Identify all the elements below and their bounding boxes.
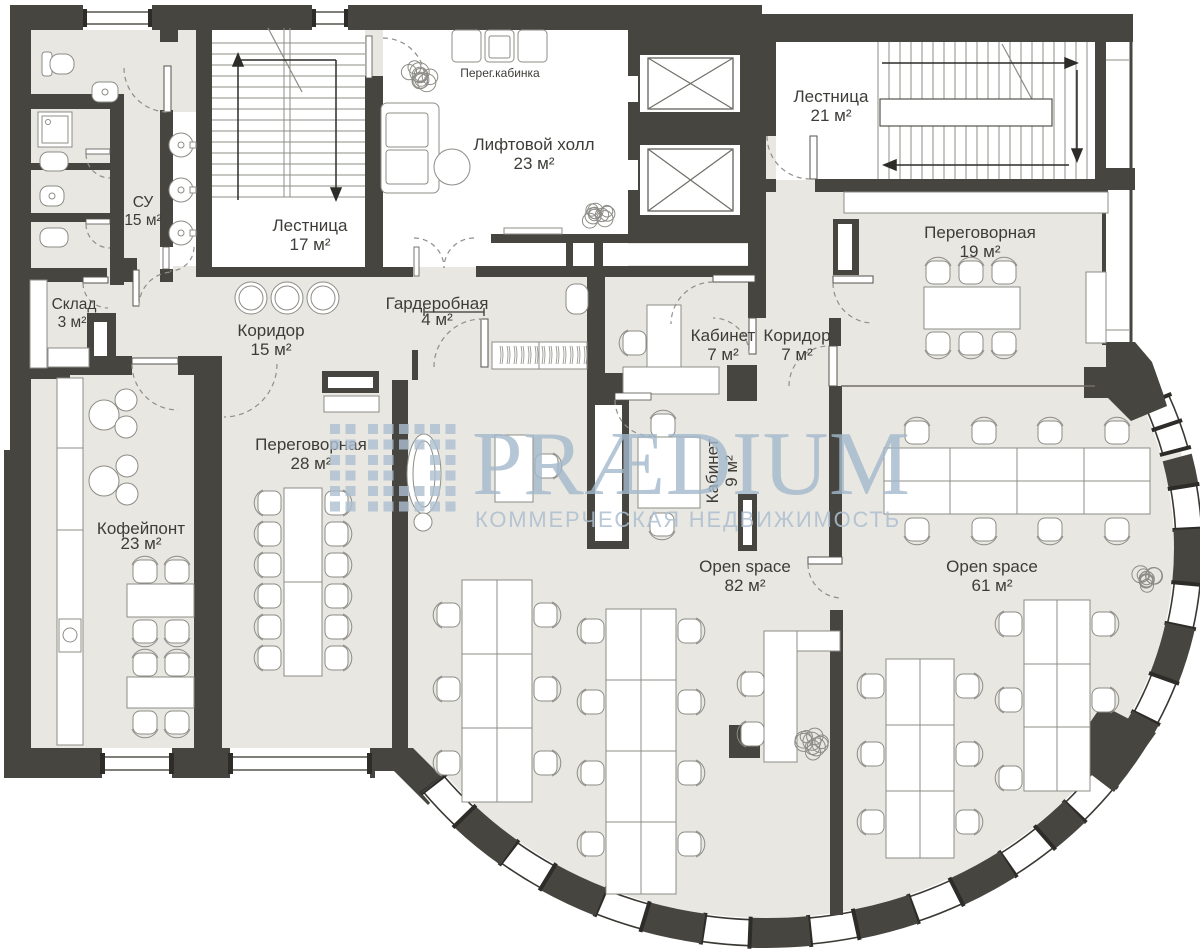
svg-text:23 м²: 23 м²: [121, 534, 162, 553]
svg-text:21 м²: 21 м²: [811, 106, 852, 125]
svg-text:Open space: Open space: [946, 557, 1038, 576]
svg-text:Коридор: Коридор: [237, 321, 304, 340]
svg-text:7 м²: 7 м²: [707, 345, 739, 364]
svg-text:7 м²: 7 м²: [781, 345, 813, 364]
svg-text:СУ: СУ: [133, 194, 154, 211]
svg-text:19 м²: 19 м²: [960, 242, 1001, 261]
svg-text:4 м²: 4 м²: [421, 310, 453, 329]
svg-text:82 м²: 82 м²: [725, 576, 766, 595]
svg-text:28 м²: 28 м²: [291, 454, 332, 473]
svg-text:КОММЕРЧЕСКАЯ НЕДВИЖИМОСТЬ: КОММЕРЧЕСКАЯ НЕДВИЖИМОСТЬ: [475, 507, 901, 532]
svg-text:Open space: Open space: [699, 557, 791, 576]
svg-text:Коридор: Коридор: [763, 326, 830, 345]
svg-text:Лестница: Лестница: [273, 216, 349, 235]
svg-text:Лестница: Лестница: [794, 87, 870, 106]
svg-text:3 м²: 3 м²: [58, 314, 87, 331]
svg-text:Склад: Склад: [52, 296, 97, 313]
svg-text:61 м²: 61 м²: [972, 576, 1013, 595]
svg-text:17 м²: 17 м²: [290, 235, 331, 254]
svg-text:Лифтовой холл: Лифтовой холл: [473, 135, 594, 154]
svg-text:Перег.кабинка: Перег.кабинка: [460, 66, 540, 80]
svg-text:15 м²: 15 м²: [124, 212, 161, 229]
svg-text:Кабинет: Кабинет: [691, 326, 756, 345]
svg-text:Переговорная: Переговорная: [924, 223, 1036, 242]
svg-text:23 м²: 23 м²: [514, 154, 555, 173]
svg-text:PRÆDIUM: PRÆDIUM: [472, 413, 910, 514]
svg-text:15 м²: 15 м²: [251, 340, 292, 359]
